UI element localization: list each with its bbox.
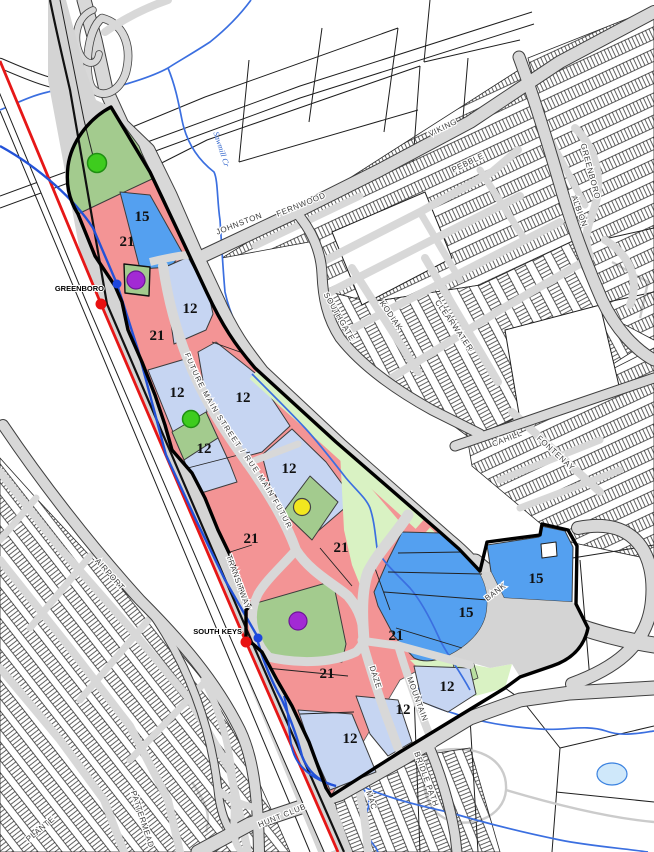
svg-text:12: 12 <box>183 301 198 317</box>
svg-text:12: 12 <box>440 679 455 695</box>
svg-text:GREENBORO: GREENBORO <box>55 284 104 293</box>
svg-text:12: 12 <box>236 390 251 406</box>
svg-text:21: 21 <box>120 234 135 250</box>
svg-text:12: 12 <box>396 702 411 718</box>
svg-text:12: 12 <box>343 731 358 747</box>
svg-text:SOUTH KEYS: SOUTH KEYS <box>193 627 242 636</box>
svg-text:21: 21 <box>389 628 404 644</box>
svg-text:21: 21 <box>334 540 349 556</box>
svg-text:15: 15 <box>459 605 474 621</box>
svg-text:21: 21 <box>244 531 259 547</box>
svg-text:21: 21 <box>150 328 165 344</box>
svg-text:21: 21 <box>320 666 335 682</box>
svg-text:12: 12 <box>282 461 297 477</box>
svg-text:15: 15 <box>135 209 150 225</box>
svg-text:12: 12 <box>170 385 185 401</box>
svg-text:15: 15 <box>529 571 544 587</box>
svg-text:12: 12 <box>197 441 212 457</box>
